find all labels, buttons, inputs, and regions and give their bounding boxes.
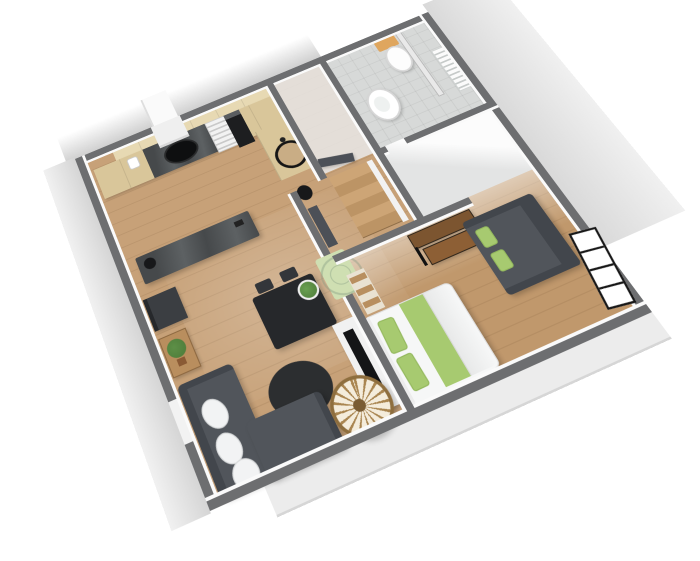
- apartment-plan: [75, 12, 652, 511]
- ladder-rung: [349, 272, 368, 284]
- window-mullion: [599, 281, 624, 289]
- floorplan-stage: [0, 0, 700, 500]
- window-mullion: [580, 246, 604, 254]
- ladder-rung: [356, 284, 375, 296]
- ladder-rung: [362, 296, 381, 309]
- window-mullion: [589, 263, 614, 271]
